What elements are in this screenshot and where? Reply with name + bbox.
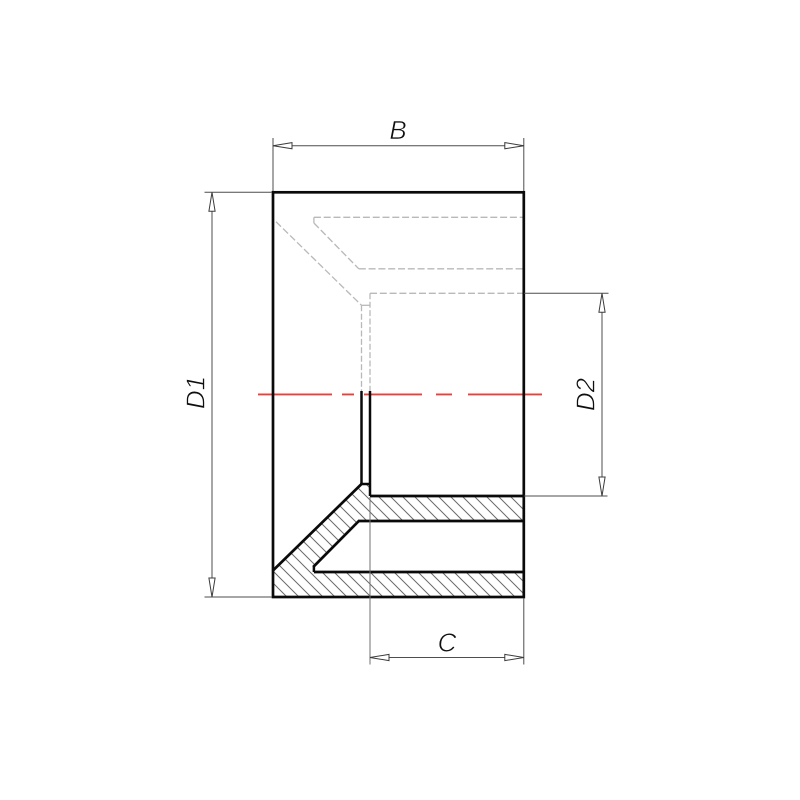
svg-text:C: C	[438, 628, 457, 658]
svg-text:B: B	[389, 115, 406, 145]
svg-text:D2: D2	[571, 377, 601, 411]
svg-text:D1: D1	[181, 376, 211, 409]
